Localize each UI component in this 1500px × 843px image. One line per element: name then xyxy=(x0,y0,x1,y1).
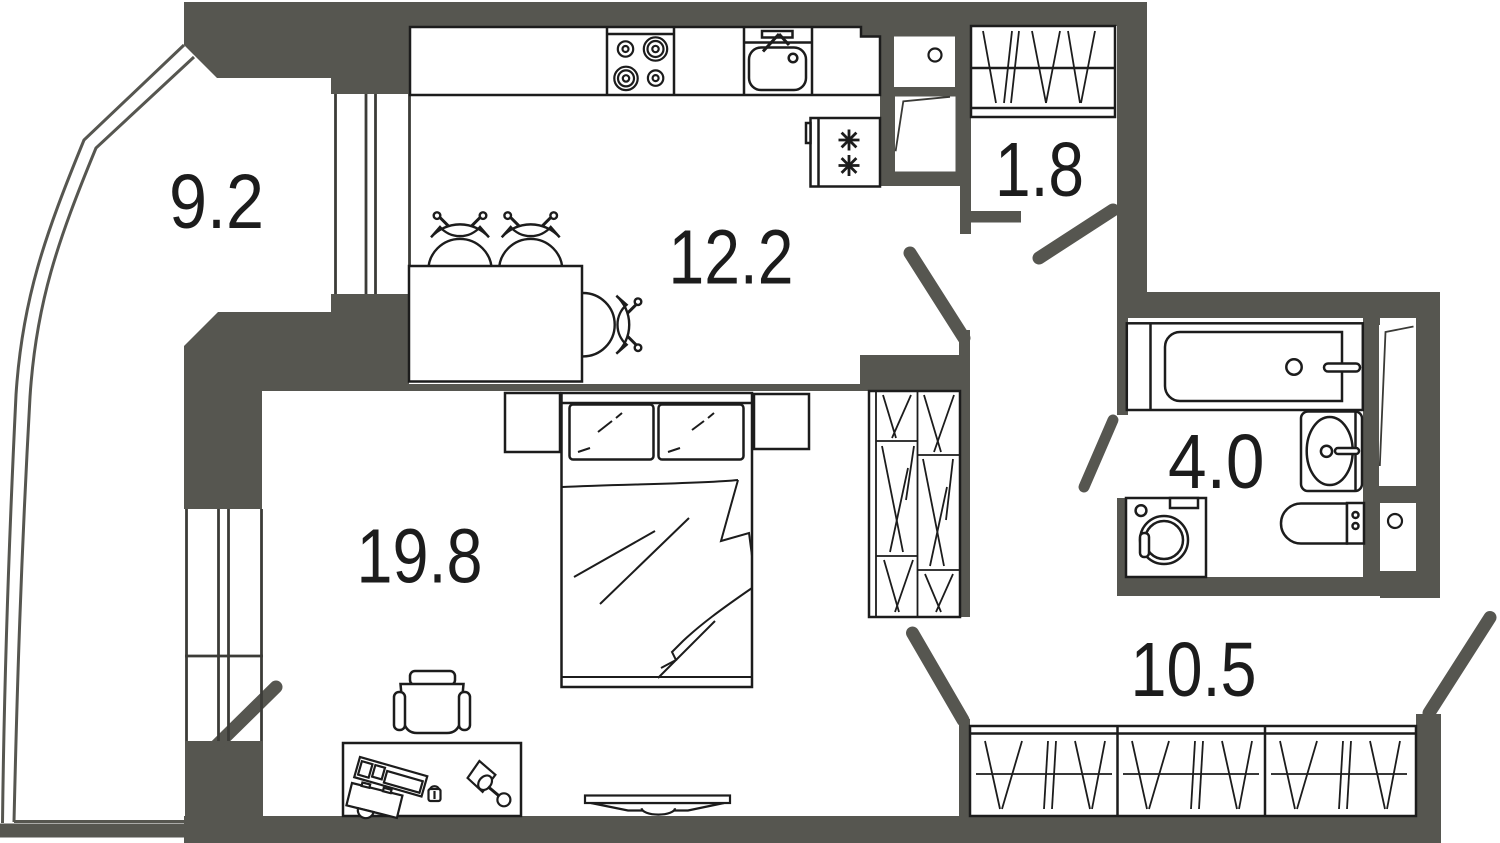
svg-text:12.2: 12.2 xyxy=(669,214,794,300)
svg-text:4.0: 4.0 xyxy=(1168,419,1265,505)
svg-text:9.2: 9.2 xyxy=(169,159,264,245)
svg-text:10.5: 10.5 xyxy=(1131,627,1257,713)
svg-text:1.8: 1.8 xyxy=(995,127,1084,213)
svg-text:19.8: 19.8 xyxy=(357,514,483,600)
